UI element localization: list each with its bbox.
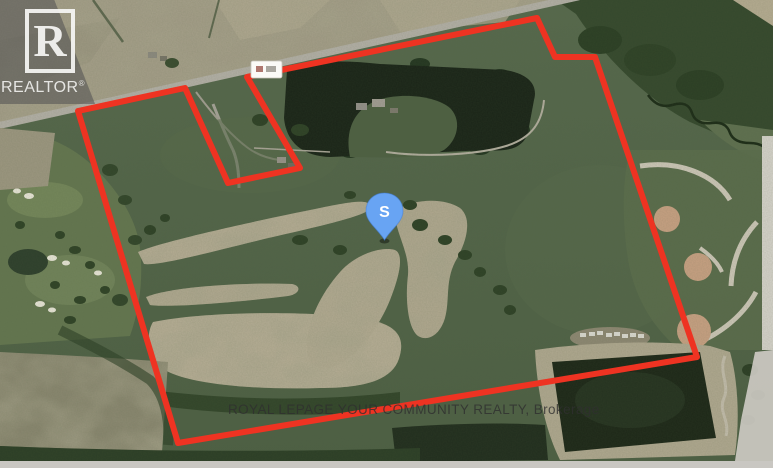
- road-sign-marker: [251, 61, 282, 78]
- realtor-logo-letter: R: [33, 18, 66, 64]
- realtor-wordmark: REALTOR®: [1, 79, 97, 97]
- realtor-watermark: R REALTOR®: [0, 0, 97, 104]
- registered-trademark-symbol: ®: [79, 79, 85, 88]
- realtor-logo-icon: R: [25, 9, 75, 73]
- satellite-map: S: [0, 0, 773, 468]
- aerial-listing-photo[interactable]: S R REALTOR® ROYAL LEPAGE YOUR COMMUNITY…: [0, 0, 773, 468]
- photo-edge-bottom: [0, 461, 773, 468]
- pin-label: S: [379, 204, 390, 221]
- brokerage-watermark: ROYAL LEPAGE YOUR COMMUNITY REALTY, Brok…: [228, 402, 600, 417]
